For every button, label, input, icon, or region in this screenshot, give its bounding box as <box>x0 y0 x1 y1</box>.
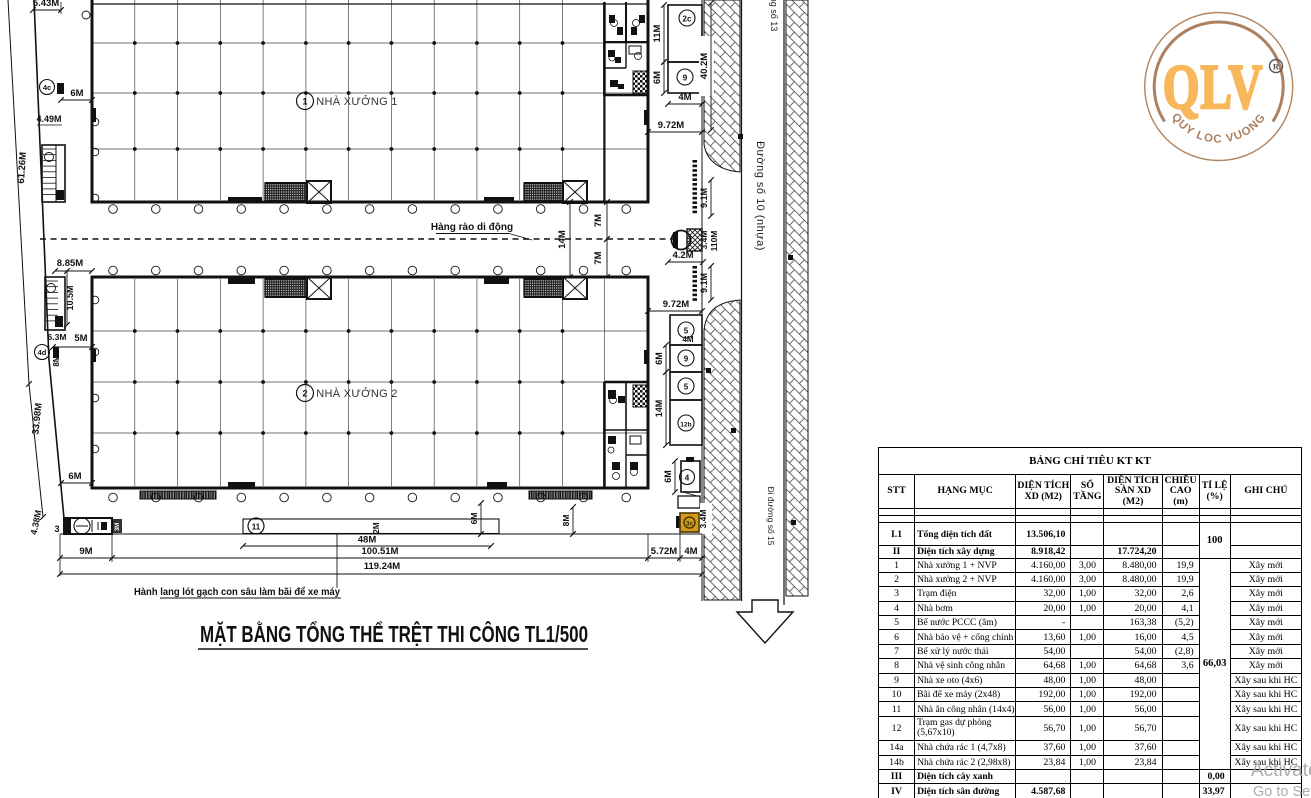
svg-text:6M: 6M <box>70 88 83 99</box>
svg-text:Hàng rào di động: Hàng rào di động <box>431 222 513 233</box>
svg-text:4M: 4M <box>682 335 693 344</box>
svg-text:NHÀ XƯỞNG 2: NHÀ XƯỞNG 2 <box>316 387 397 400</box>
svg-text:9.1M: 9.1M <box>699 273 709 293</box>
svg-text:4.38M: 4.38M <box>29 509 44 536</box>
svg-text:11M: 11M <box>652 24 663 42</box>
svg-text:5.43M: 5.43M <box>33 0 59 9</box>
svg-text:5: 5 <box>684 383 689 392</box>
svg-text:9M: 9M <box>79 546 92 557</box>
svg-text:110M: 110M <box>709 231 719 252</box>
svg-text:Hành lang lót gạch con sâu làm: Hành lang lót gạch con sâu làm bãi để xe… <box>134 586 340 598</box>
svg-text:9.1M: 9.1M <box>699 188 709 208</box>
svg-text:4: 4 <box>685 474 690 483</box>
svg-text:2M: 2M <box>372 522 381 533</box>
svg-text:9.72M: 9.72M <box>658 120 684 131</box>
svg-text:6M: 6M <box>68 471 81 482</box>
svg-text:3c: 3c <box>686 521 694 528</box>
svg-text:6M: 6M <box>663 470 673 483</box>
svg-text:6.3M: 6.3M <box>48 332 67 342</box>
svg-text:4M: 4M <box>684 546 697 557</box>
svg-text:8.85M: 8.85M <box>57 258 83 269</box>
svg-text:3.4M: 3.4M <box>698 510 708 529</box>
svg-text:14M: 14M <box>654 400 664 418</box>
svg-text:4.49M: 4.49M <box>36 114 61 124</box>
svg-text:8M: 8M <box>561 515 571 527</box>
svg-text:48M: 48M <box>358 535 377 546</box>
svg-text:5.72M: 5.72M <box>651 546 677 557</box>
svg-text:6M: 6M <box>652 71 663 84</box>
svg-text:61.26M: 61.26M <box>16 152 29 184</box>
svg-text:R: R <box>1273 62 1280 72</box>
svg-text:10.5M: 10.5M <box>65 285 75 310</box>
svg-text:NHÀ XƯỞNG 1: NHÀ XƯỞNG 1 <box>316 95 397 108</box>
svg-text:11: 11 <box>252 523 261 532</box>
svg-text:7M: 7M <box>593 214 604 227</box>
svg-text:119.24M: 119.24M <box>364 561 401 572</box>
svg-text:2c: 2c <box>683 15 692 24</box>
svg-text:6M: 6M <box>469 513 479 525</box>
svg-text:7M: 7M <box>593 251 604 264</box>
svg-text:MẶT BẰNG TỔNG THỂ TRỆT THI CÔN: MẶT BẰNG TỔNG THỂ TRỆT THI CÔNG TL1/500 <box>200 620 588 647</box>
svg-text:9.72M: 9.72M <box>663 299 689 310</box>
svg-text:12b: 12b <box>680 422 691 429</box>
svg-text:8M: 8M <box>52 355 61 366</box>
svg-text:QLV: QLV <box>1163 52 1263 122</box>
svg-text:5M: 5M <box>74 333 87 344</box>
svg-text:3.4M: 3.4M <box>699 231 709 250</box>
svg-text:4.2M: 4.2M <box>672 250 693 261</box>
svg-text:3M: 3M <box>115 523 121 531</box>
svg-text:Đi đường số 15: Đi đường số 15 <box>766 487 776 546</box>
svg-text:100.51M: 100.51M <box>362 546 399 557</box>
svg-text:2: 2 <box>302 389 307 399</box>
svg-text:4M: 4M <box>678 92 691 103</box>
svg-text:9: 9 <box>683 74 688 83</box>
svg-text:4c: 4c <box>43 83 51 92</box>
svg-text:33.98M: 33.98M <box>30 402 44 435</box>
svg-text:ng số 13: ng số 13 <box>769 0 779 31</box>
svg-text:9: 9 <box>684 355 689 364</box>
svg-text:6M: 6M <box>654 352 664 365</box>
svg-text:Đường số 10 (nhựa): Đường số 10 (nhựa) <box>754 141 766 251</box>
svg-text:3: 3 <box>54 524 59 534</box>
svg-text:4d: 4d <box>38 348 47 357</box>
svg-text:14M: 14M <box>557 230 568 249</box>
svg-text:40.2M: 40.2M <box>699 53 710 79</box>
svg-text:1: 1 <box>302 97 307 107</box>
